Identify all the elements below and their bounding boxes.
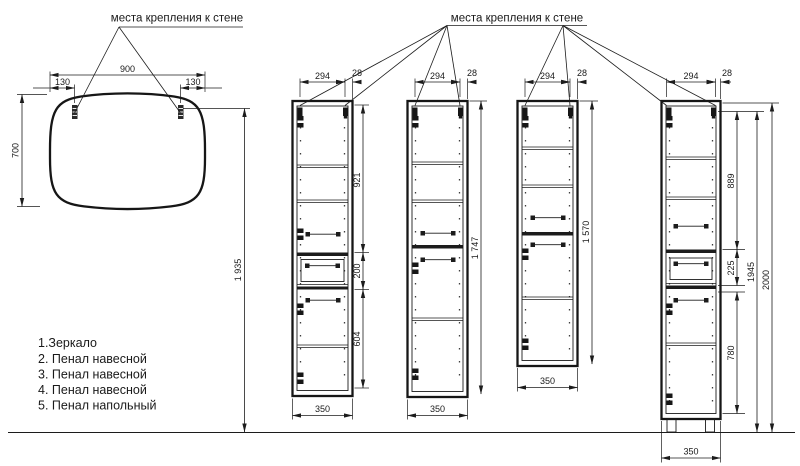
cabinet-3-dim-height: 1 747 — [470, 101, 488, 394]
mirror-dim-700: 700 — [11, 95, 48, 207]
legend-item-3: 3. Пенал навесной — [38, 368, 147, 382]
cabinet-2-divider — [297, 253, 348, 257]
cabinet-2-door-handle-top — [306, 232, 341, 237]
cabinet-5-dim-top: 294 28 — [667, 68, 733, 99]
cabinet-3-width-label: 350 — [430, 404, 445, 414]
cabinet-2-width-label: 350 — [315, 404, 330, 414]
mirror-dim-1935: 1 935 — [183, 109, 250, 433]
cabinet-2-bottom-section-label: 604 — [352, 331, 362, 346]
cabinet-3-body — [408, 101, 468, 397]
cabinet-4-divider — [522, 232, 573, 236]
cabinet-2-top-section-label: 921 — [352, 172, 362, 187]
legend-item-1: 1.Зеркало — [38, 336, 97, 350]
legend-item-4: 4. Пенал навесной — [38, 383, 147, 397]
cabinet-3-door-handle-top — [421, 231, 456, 236]
mirror-offset-left-label: 130 — [55, 77, 70, 87]
cabinet-3-door-handle-bottom — [421, 258, 456, 263]
cabinet-3-mount-right — [458, 108, 463, 119]
cabinet-4-offset-label: 28 — [577, 68, 587, 78]
cabinet-5-span-label: 294 — [683, 71, 698, 81]
cabinet-5-bottom-section-label: 780 — [726, 345, 736, 360]
cabinet-4-dim-height: 1 570 — [580, 101, 599, 364]
wall-note-right-label: места крепления к стене — [451, 13, 583, 25]
cabinet-4-mount-right — [568, 108, 573, 119]
cabinet-5-door-handle-bottom — [674, 298, 709, 303]
cabinet-5-door-handle-top — [674, 224, 709, 229]
cabinet-5-width-label: 350 — [683, 447, 698, 457]
mirror-mount-right — [178, 105, 184, 119]
cabinet-4-dim-width: 350 — [518, 368, 578, 392]
cabinet-3-drawing: 294 28 1 747 350 — [408, 68, 488, 420]
cabinet-5-mount-right — [711, 108, 716, 119]
cabinet-5-drawer — [666, 258, 716, 289]
cabinet-3-span-label: 294 — [430, 71, 445, 81]
cabinet-4-shelves — [522, 147, 573, 300]
cabinet-2-body — [293, 101, 353, 396]
cabinet-3-pin-holes — [416, 114, 460, 387]
mirror-width-label: 900 — [120, 64, 135, 74]
cabinet-5-top-section-label: 889 — [726, 173, 736, 188]
mirror-offset-right-label: 130 — [185, 77, 200, 87]
cabinet-2-drawer-section-label: 200 — [352, 263, 362, 278]
legend-item-2: 2. Пенал навесной — [38, 352, 147, 366]
cabinet-4-height-label: 1 570 — [581, 221, 591, 244]
cabinet-2-span-label: 294 — [315, 71, 330, 81]
cabinet-2-drawing: 294 28 921 200 604 350 — [293, 68, 370, 420]
cabinet-2-shelves — [297, 165, 348, 348]
wall-note-left-label: места крепления к стене — [111, 13, 243, 25]
legend-item-5: 5. Пенал напольный — [38, 399, 156, 413]
cabinet-3-offset-label: 28 — [467, 68, 477, 78]
cabinet-2-hinges — [298, 116, 304, 384]
cabinet-2-mount-right — [343, 108, 348, 119]
mirror-mount-height-label: 1 935 — [233, 259, 243, 282]
cabinet-5-legs — [667, 419, 715, 432]
cabinet-2-dim-top: 294 28 — [300, 68, 362, 99]
cabinet-2-drawer — [297, 260, 348, 290]
cabinet-4-door-handle-top — [531, 216, 566, 221]
cabinet-3-dim-width: 350 — [408, 400, 468, 420]
cabinet-2-dims-right: 921 200 604 — [352, 105, 369, 388]
cabinet-4-drawing: 294 28 1 570 350 — [518, 68, 599, 392]
cabinet-3-height-label: 1 747 — [470, 237, 480, 260]
cabinet-3-shelves — [412, 162, 463, 321]
technical-drawing: 900 130 130 700 1 935 м — [0, 0, 800, 466]
cabinet-5-drawer-section-label: 225 — [726, 260, 736, 275]
mirror-height-label: 700 — [11, 143, 21, 158]
cabinet-4-door-handle-bottom — [531, 243, 566, 248]
cabinet-4-span-label: 294 — [540, 71, 555, 81]
cabinet-5-pin-holes — [670, 114, 713, 408]
cabinet-5-drawing: 294 28 889 225 780 1945 2000 350 — [662, 68, 780, 463]
wall-note-left: места крепления к стене — [75, 13, 244, 114]
cabinet-4-dim-top: 294 28 — [525, 68, 587, 99]
cabinet-5-body-height-label: 1945 — [746, 262, 756, 282]
cabinet-3-dim-top: 294 28 — [415, 68, 477, 99]
cabinet-5-total-height-label: 2000 — [761, 270, 771, 290]
cabinet-5-dim-width: 350 — [662, 421, 721, 463]
wall-note-right: места крепления к стене — [300, 13, 716, 106]
cabinet-5-dims-right: 889 225 780 1945 2000 — [718, 103, 779, 432]
legend: 1.Зеркало 2. Пенал навесной 3. Пенал нав… — [38, 336, 156, 413]
cabinet-2-dim-width: 350 — [293, 399, 353, 420]
cabinet-2-door-handle-bottom — [306, 298, 341, 303]
cabinet-5-divider — [666, 250, 716, 254]
cabinet-3-divider — [412, 245, 463, 249]
cabinet-4-width-label: 350 — [540, 376, 555, 386]
cabinet-5-offset-label: 28 — [722, 68, 732, 78]
